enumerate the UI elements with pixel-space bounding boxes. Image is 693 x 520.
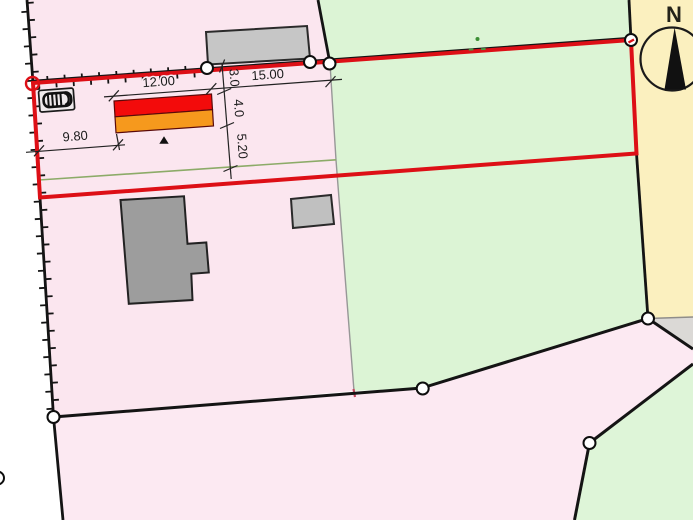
svg-text:9.80: 9.80 <box>62 128 88 145</box>
svg-text:12.00: 12.00 <box>142 73 176 90</box>
svg-text:4.0: 4.0 <box>231 99 247 118</box>
svg-text:15.00: 15.00 <box>251 66 285 83</box>
svg-text:N: N <box>666 2 682 27</box>
svg-text:3.0: 3.0 <box>226 68 242 87</box>
svg-text:5.20: 5.20 <box>234 133 251 159</box>
